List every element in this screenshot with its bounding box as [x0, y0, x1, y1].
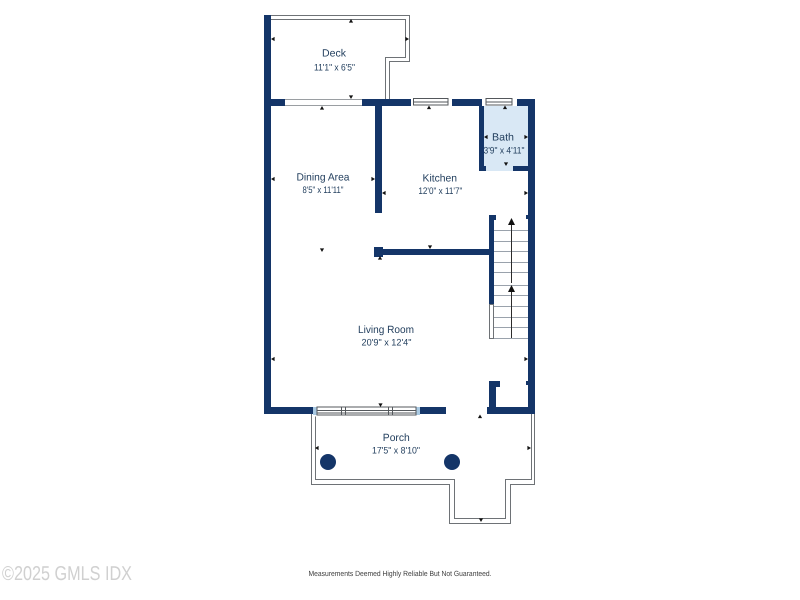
svg-text:20'9" x 12'4": 20'9" x 12'4" [362, 337, 412, 348]
svg-text:12'0" x 11'7": 12'0" x 11'7" [418, 186, 462, 197]
svg-text:Bath: Bath [492, 132, 514, 144]
svg-text:Deck: Deck [322, 48, 347, 60]
svg-text:Kitchen: Kitchen [423, 172, 458, 184]
svg-text:17'5" x 8'10": 17'5" x 8'10" [372, 445, 420, 456]
svg-text:Living Room: Living Room [358, 324, 414, 336]
svg-text:Measurements Deemed Highly Rel: Measurements Deemed Highly Reliable But … [309, 569, 492, 578]
svg-text:Porch: Porch [383, 432, 410, 444]
svg-text:11'1" x 6'5": 11'1" x 6'5" [314, 62, 355, 73]
svg-text:3'9" x 4'11": 3'9" x 4'11" [484, 145, 525, 156]
svg-text:©2025 GMLS IDX: ©2025 GMLS IDX [2, 563, 132, 585]
svg-text:Dining Area: Dining Area [297, 172, 350, 184]
svg-text:8'5" x 11'11": 8'5" x 11'11" [303, 185, 344, 196]
